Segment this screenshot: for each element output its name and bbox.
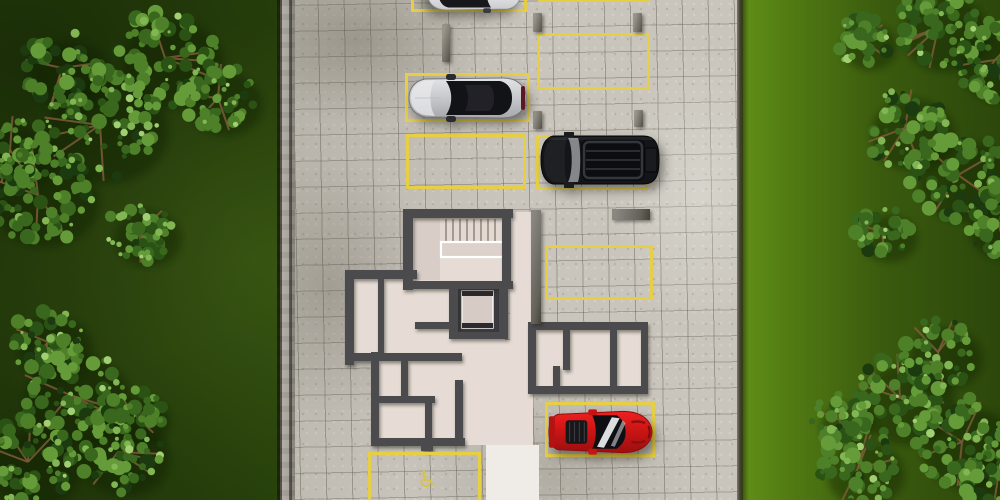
screen-wall-horizontal <box>612 209 650 220</box>
parking-space-right-1 <box>537 33 650 90</box>
bollard-4 <box>533 111 542 129</box>
parking-space-top-right <box>538 0 650 2</box>
bollard-5 <box>634 110 643 127</box>
screen-wall-vertical <box>531 210 541 324</box>
grass-left <box>0 0 278 500</box>
parking-space-accessible: ♿ <box>368 452 481 500</box>
grass-right <box>742 0 1000 500</box>
bollard-1 <box>442 24 450 62</box>
boundary-wall-left <box>277 0 295 500</box>
black-suv <box>537 132 663 188</box>
parking-space-left-3 <box>406 134 526 189</box>
silver-car <box>405 74 530 122</box>
bollard-3 <box>633 13 642 32</box>
parking-space-right-3 <box>545 245 653 300</box>
red-sports-car <box>546 407 656 457</box>
white-car <box>424 0 524 13</box>
site-plan-scene: ♿ <box>0 0 1000 500</box>
wheelchair-icon: ♿ <box>416 468 438 492</box>
bollard-2 <box>533 13 542 32</box>
